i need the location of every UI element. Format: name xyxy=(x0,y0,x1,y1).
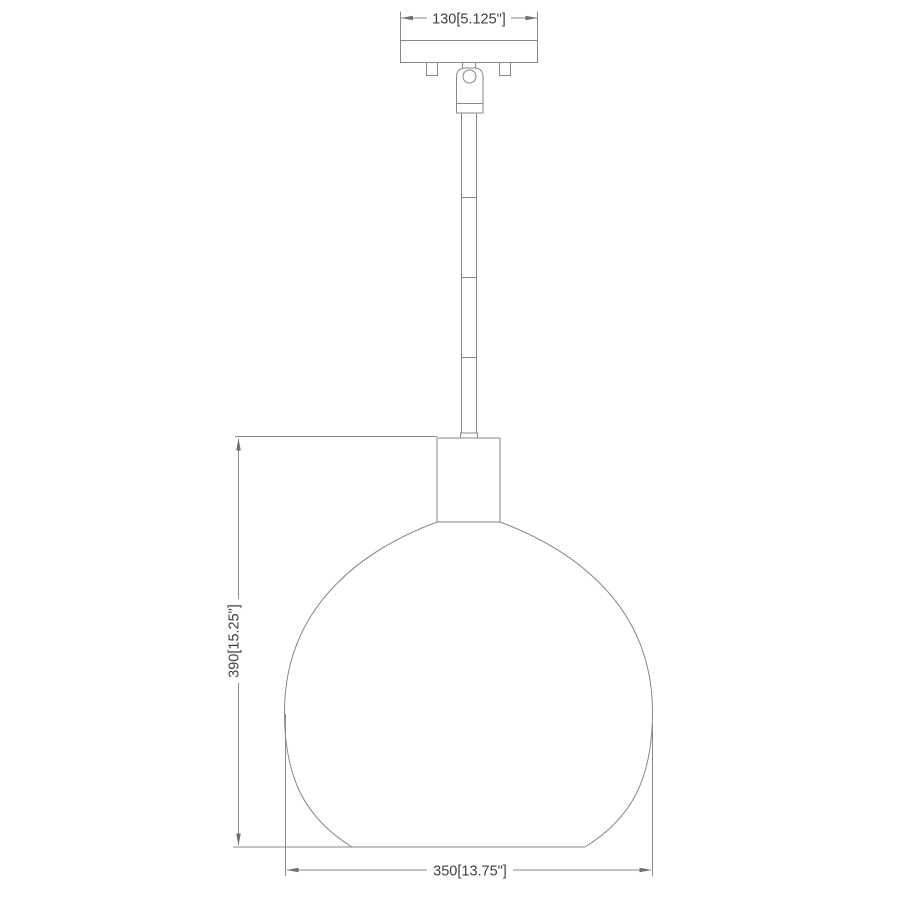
screw-tab-left xyxy=(427,63,438,76)
dimension-canopy-width: 130[5.125"] xyxy=(401,10,538,41)
stem-rod-assembly xyxy=(461,113,478,438)
swivel-pivot-circle xyxy=(463,70,476,83)
swivel-joint xyxy=(457,63,484,114)
arrowhead-up-icon xyxy=(236,439,241,451)
arrowhead-left-icon xyxy=(287,868,299,873)
canopy-plate xyxy=(401,41,538,63)
dimension-drawing-page: 130[5.125"] 390[15.25"] 350[13.75"] xyxy=(0,0,900,900)
arrowhead-left-icon xyxy=(401,16,413,21)
canopy-width-label: 130[5.125"] xyxy=(432,12,506,28)
shade-diameter-label: 350[13.75"] xyxy=(433,864,507,880)
fixture-height-label-group: 390[15.25"] xyxy=(225,599,243,683)
socket-holder xyxy=(437,438,500,522)
arrowhead-down-icon xyxy=(236,834,241,846)
arrowhead-right-icon xyxy=(640,868,652,873)
pendant-light-dimension-drawing: 130[5.125"] 390[15.25"] 350[13.75"] xyxy=(0,0,900,900)
arrowhead-right-icon xyxy=(526,16,538,21)
dimension-fixture-height: 390[15.25"] xyxy=(225,437,438,848)
globe-shade-outline xyxy=(285,522,653,847)
stem-rod xyxy=(462,113,477,433)
dimension-shade-diameter: 350[13.75"] xyxy=(286,714,653,880)
screw-tab-right xyxy=(500,63,511,76)
fixture-height-label: 390[15.25"] xyxy=(227,604,243,678)
rod-end-collar xyxy=(461,433,478,438)
